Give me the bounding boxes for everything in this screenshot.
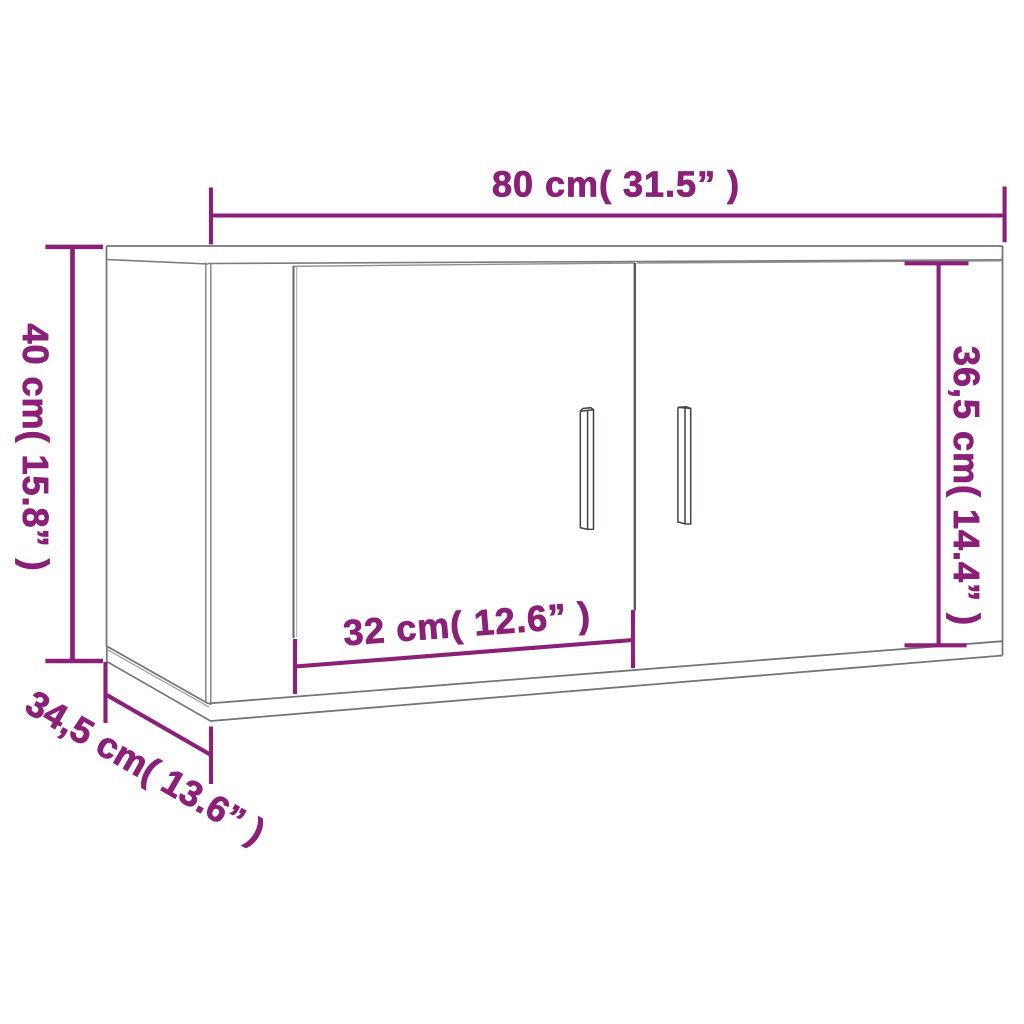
svg-text:34,5 cm( 13.6” ): 34,5 cm( 13.6” ) xyxy=(19,682,272,852)
svg-text:36,5 cm( 14.4” ): 36,5 cm( 14.4” ) xyxy=(946,346,987,626)
svg-text:80 cm( 31.5” ): 80 cm( 31.5” ) xyxy=(492,164,740,205)
svg-text:40 cm( 15.8” ): 40 cm( 15.8” ) xyxy=(15,323,56,571)
